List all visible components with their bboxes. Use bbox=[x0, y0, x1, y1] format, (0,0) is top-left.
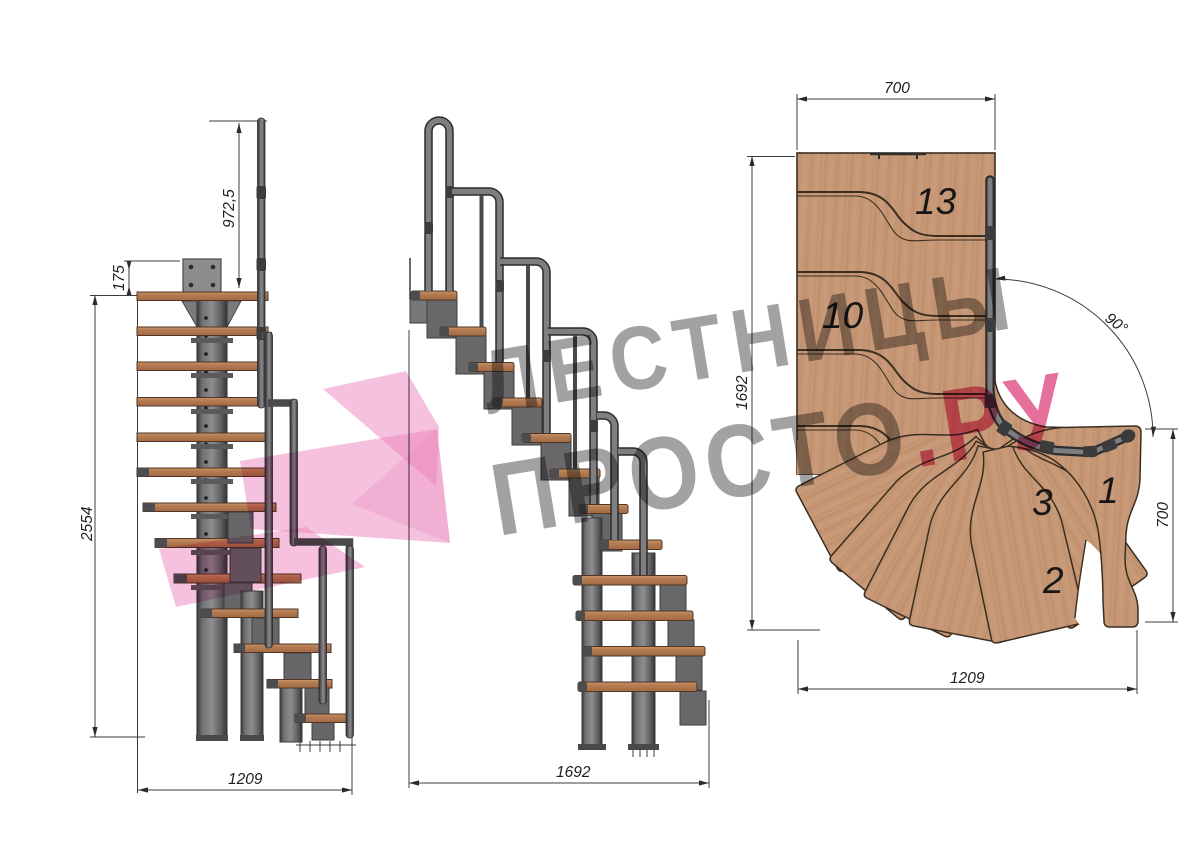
svg-text:1209: 1209 bbox=[228, 771, 263, 788]
svg-text:1692: 1692 bbox=[556, 764, 591, 781]
svg-text:700: 700 bbox=[884, 80, 910, 97]
svg-text:1: 1 bbox=[1098, 470, 1119, 511]
svg-text:2: 2 bbox=[1042, 560, 1064, 601]
svg-text:972,5: 972,5 bbox=[221, 189, 238, 228]
svg-text:175: 175 bbox=[111, 265, 128, 291]
svg-text:90°: 90° bbox=[1102, 310, 1131, 338]
svg-text:2554: 2554 bbox=[79, 506, 96, 542]
svg-text:3: 3 bbox=[1032, 482, 1053, 523]
svg-text:1209: 1209 bbox=[950, 670, 985, 687]
svg-text:700: 700 bbox=[1155, 502, 1172, 528]
svg-text:13: 13 bbox=[915, 181, 957, 222]
